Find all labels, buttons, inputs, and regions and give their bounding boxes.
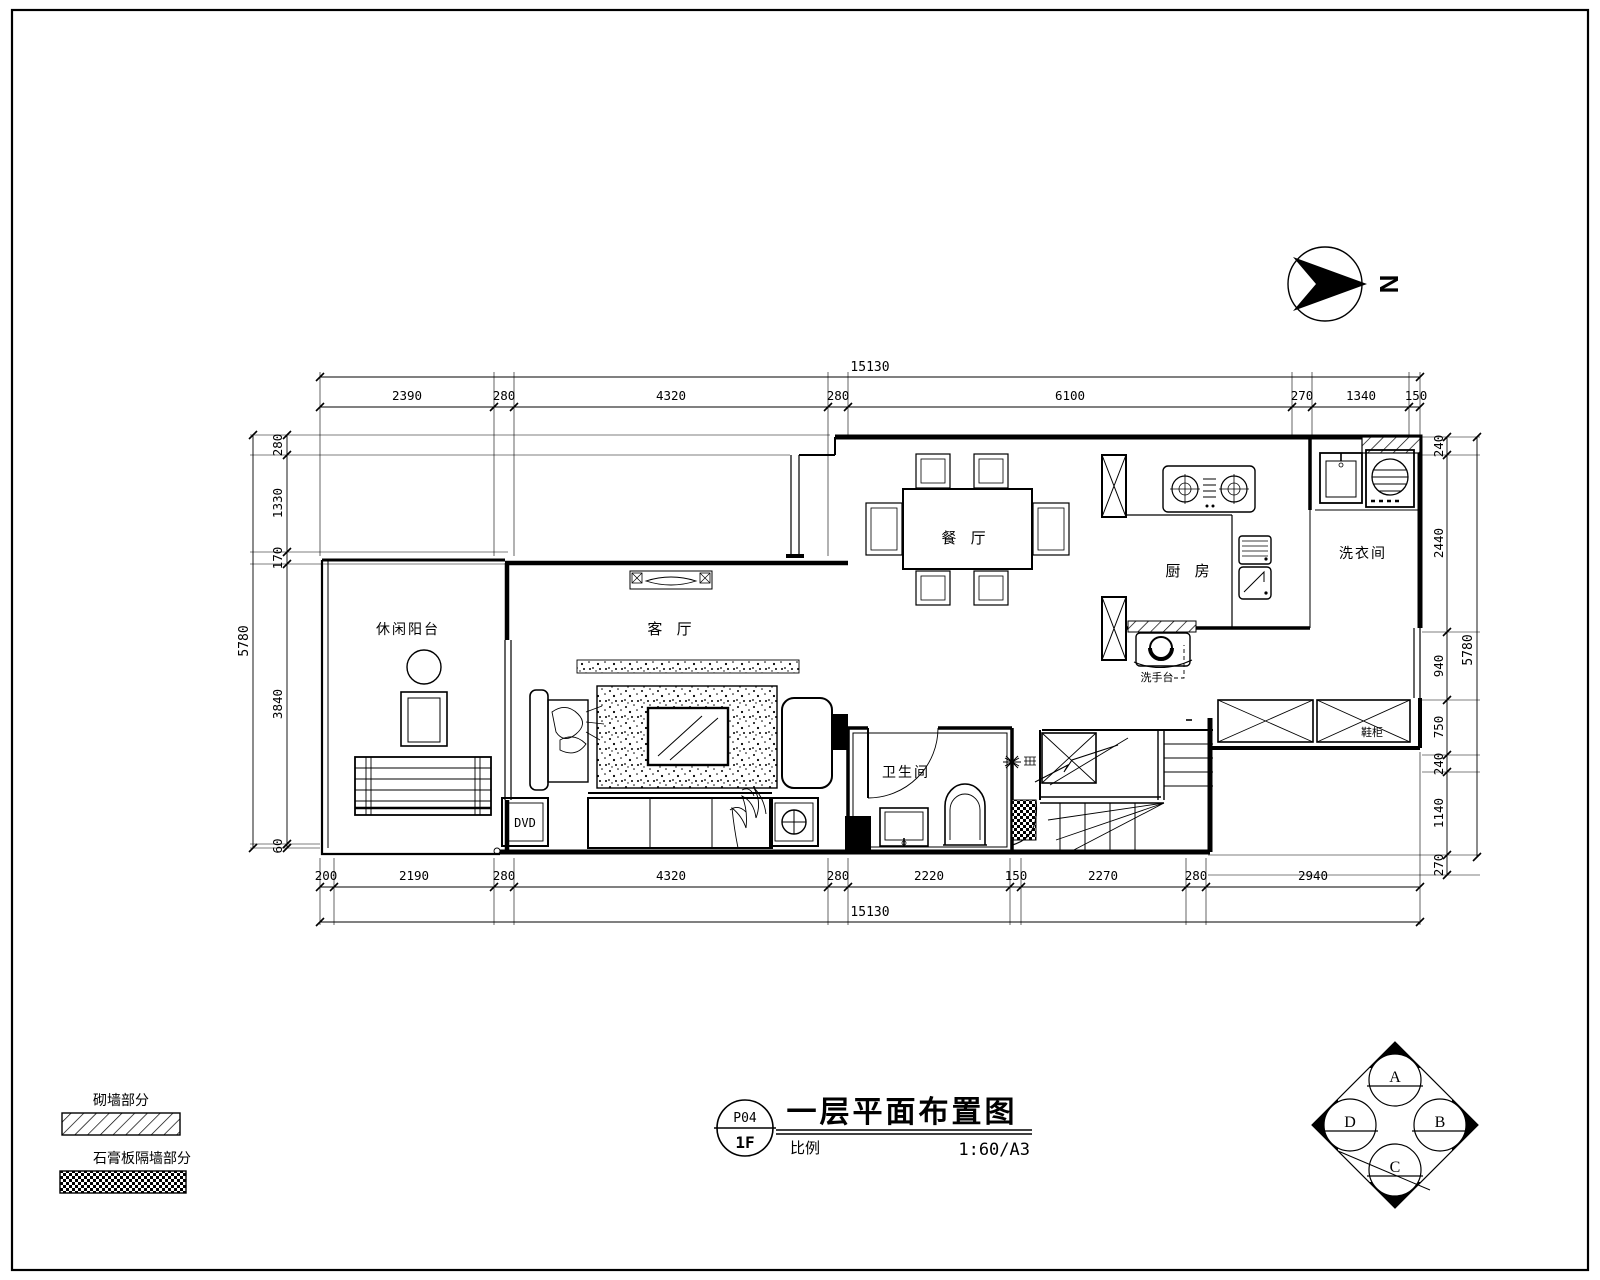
tv-icon bbox=[648, 708, 728, 765]
sheet-number: P04 bbox=[733, 1111, 757, 1126]
dim-bottom-seg: 2270 bbox=[1088, 868, 1118, 883]
legend-masonry-swatch bbox=[62, 1113, 180, 1135]
dim-top-seg: 270 bbox=[1291, 388, 1314, 403]
dining-chair-icon bbox=[1033, 503, 1069, 555]
elevation-letter-a: A bbox=[1389, 1069, 1401, 1086]
dim-left-seg: 3840 bbox=[270, 689, 285, 719]
column-icon bbox=[1102, 455, 1126, 517]
label-shoe-cabinet: 鞋柜 bbox=[1361, 725, 1383, 739]
dim-right-seg: 270 bbox=[1431, 854, 1446, 877]
legend-gypsum-swatch bbox=[60, 1171, 186, 1193]
scale-label: 比例 bbox=[790, 1140, 820, 1157]
dim-bottom-seg: 280 bbox=[1185, 868, 1208, 883]
legend-gypsum-label: 石膏板隔墙部分 bbox=[93, 1150, 191, 1166]
room-label-bath: 卫生间 bbox=[882, 764, 930, 780]
dining-table-icon bbox=[903, 489, 1032, 569]
dim-right-seg: 1140 bbox=[1431, 798, 1446, 828]
dining-chair-icon bbox=[916, 571, 950, 605]
dim-right-total: 5780 bbox=[1461, 634, 1476, 665]
room-label-living: 客 厅 bbox=[647, 621, 696, 638]
tv-wall-strip bbox=[577, 660, 799, 673]
dim-top-seg: 280 bbox=[827, 388, 850, 403]
dim-left-total: 5780 bbox=[237, 625, 252, 656]
dining-chair-icon bbox=[974, 571, 1008, 605]
elevation-letter-b: B bbox=[1435, 1114, 1446, 1131]
dim-top-total: 15130 bbox=[850, 360, 889, 375]
dim-left-seg: 60 bbox=[270, 838, 285, 853]
floor-number: 1F bbox=[735, 1133, 754, 1152]
dim-bottom-seg: 280 bbox=[493, 868, 516, 883]
room-label-balcony: 休闲阳台 bbox=[376, 621, 440, 637]
dim-right-seg: 940 bbox=[1431, 655, 1446, 678]
dim-left-seg: 170 bbox=[270, 547, 285, 570]
room-label-laundry: 洗衣间 bbox=[1339, 545, 1387, 561]
dim-top-seg: 4320 bbox=[656, 388, 686, 403]
dim-top-seg: 1340 bbox=[1346, 388, 1376, 403]
dim-bottom-seg: 200 bbox=[315, 868, 338, 883]
dim-top-seg: 6100 bbox=[1055, 388, 1085, 403]
dim-bottom-seg: 4320 bbox=[656, 868, 686, 883]
dim-bottom-seg: 2940 bbox=[1298, 868, 1328, 883]
dim-right-seg: 750 bbox=[1431, 716, 1446, 739]
dim-top-seg: 150 bbox=[1405, 388, 1428, 403]
column-icon bbox=[1102, 597, 1126, 660]
room-label-kitchen: 厨 房 bbox=[1165, 563, 1214, 580]
dim-bottom-total: 15130 bbox=[850, 905, 889, 920]
label-basin: 洗手台 bbox=[1141, 670, 1174, 684]
dvd-label: DVD bbox=[514, 816, 536, 830]
scale-value: 1:60/A3 bbox=[958, 1140, 1030, 1160]
dining-chair-icon bbox=[974, 454, 1008, 488]
dining-chair-icon bbox=[916, 454, 950, 488]
dim-left-seg: 280 bbox=[270, 434, 285, 457]
dining-chair-icon bbox=[866, 503, 902, 555]
legend-masonry-label: 砌墙部分 bbox=[93, 1092, 149, 1108]
shower-tray-icon bbox=[1012, 800, 1036, 840]
dim-bottom-seg: 150 bbox=[1005, 868, 1028, 883]
dim-bottom-seg: 2220 bbox=[914, 868, 944, 883]
north-label: N bbox=[1374, 275, 1404, 294]
room-label-dining: 餐 厅 bbox=[941, 530, 990, 547]
floorplan-sheet: N 15130 2390 280 4320 280 6100 270 1340 … bbox=[0, 0, 1600, 1280]
dim-bottom-seg: 2190 bbox=[399, 868, 429, 883]
dim-right-seg: 2440 bbox=[1431, 528, 1446, 558]
dim-right-seg: 240 bbox=[1431, 753, 1446, 776]
dim-right-seg: 240 bbox=[1431, 435, 1446, 458]
dim-top-seg: 2390 bbox=[392, 388, 422, 403]
drawing-title: 一层平面布置图 bbox=[787, 1096, 1018, 1129]
dim-bottom-seg: 280 bbox=[827, 868, 850, 883]
dim-left-seg: 1330 bbox=[270, 488, 285, 518]
dim-top-seg: 280 bbox=[493, 388, 516, 403]
elevation-letter-d: D bbox=[1344, 1114, 1356, 1131]
